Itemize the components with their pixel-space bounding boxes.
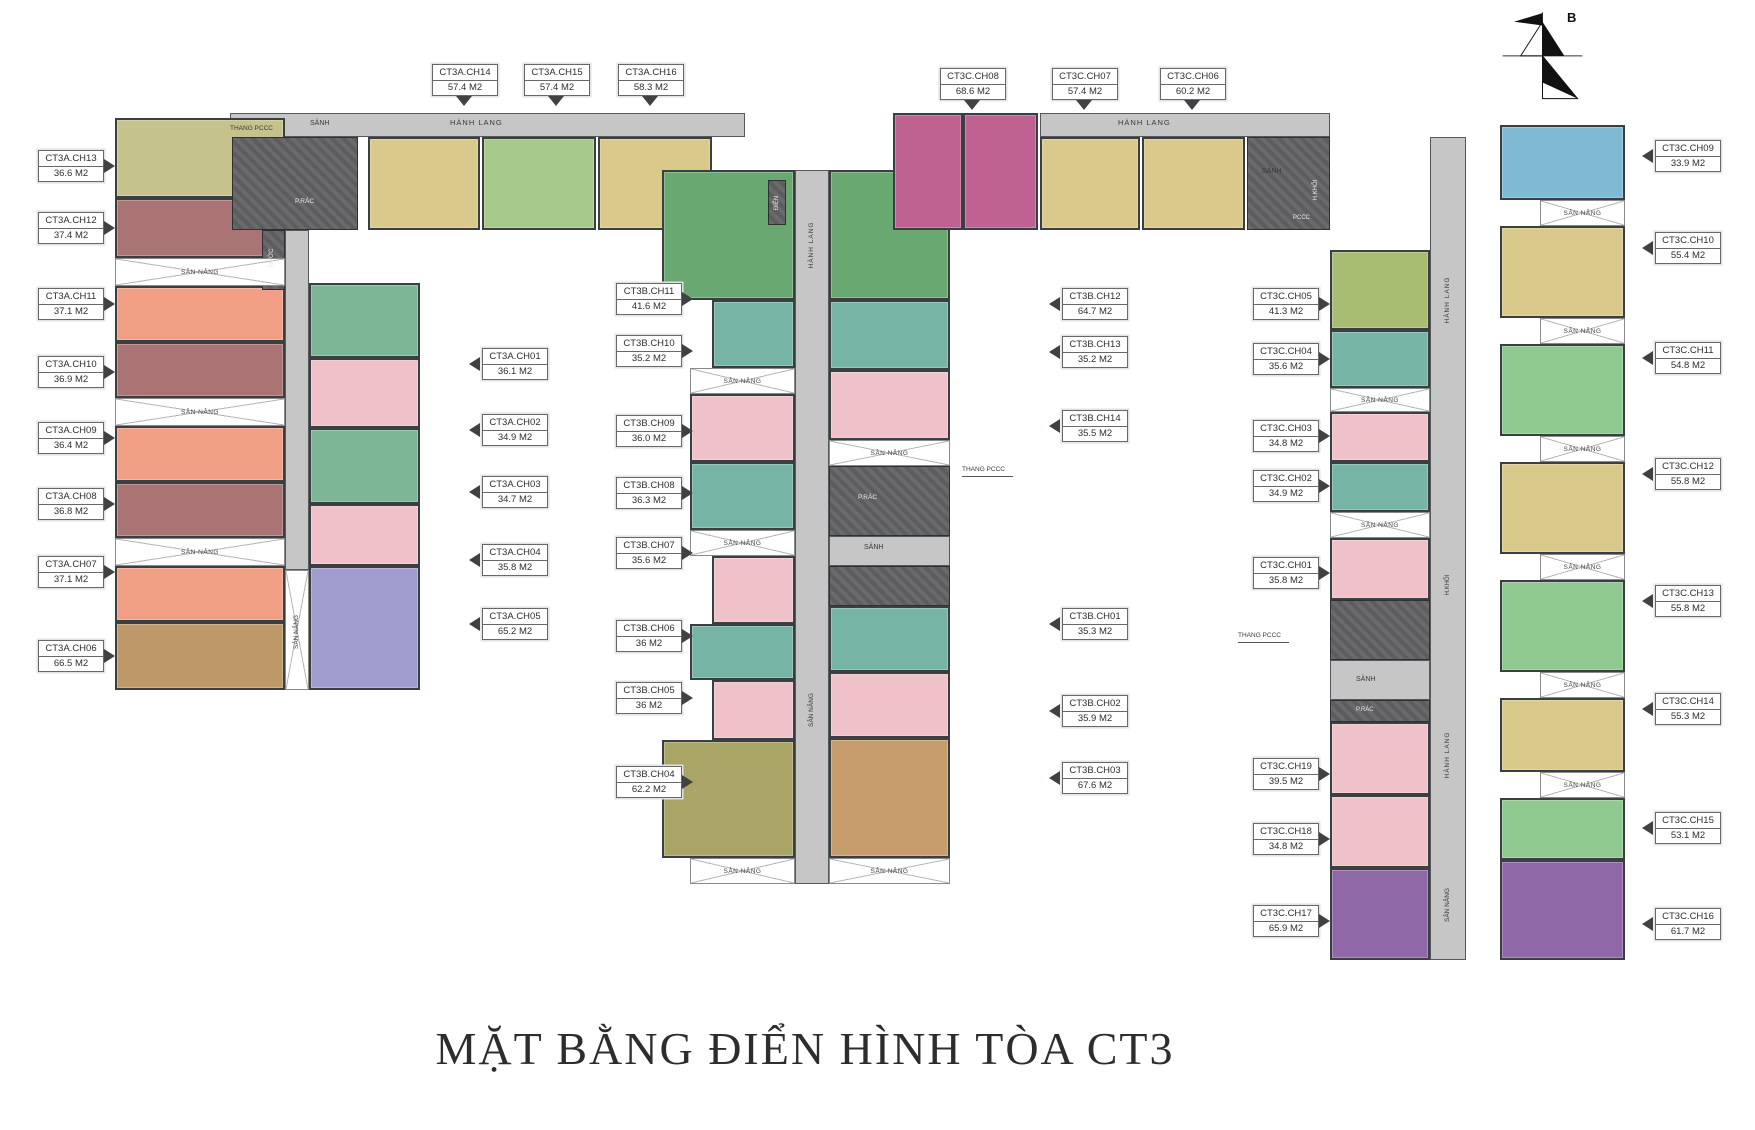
unit-area: 60.2 M2 bbox=[1161, 85, 1225, 99]
callout-arrow-icon bbox=[469, 357, 480, 371]
san-nang-strip: SÂN NÂNG bbox=[115, 258, 285, 286]
unit-callout-CT3C-CH03: CT3C.CH0334.8 M2 bbox=[1253, 420, 1319, 452]
unit-area: 55.8 M2 bbox=[1656, 602, 1720, 616]
unit-area: 68.6 M2 bbox=[941, 85, 1005, 99]
callout-arrow-icon bbox=[104, 649, 115, 663]
callout-arrow-icon bbox=[1049, 704, 1060, 718]
unit-callout-CT3C-CH12: CT3C.CH1255.8 M2 bbox=[1655, 458, 1721, 490]
unit-name: CT3C.CH16 bbox=[1656, 909, 1720, 925]
unit-area: 36.6 M2 bbox=[39, 167, 103, 181]
unit-callout-CT3A-CH07: CT3A.CH0737.1 M2 bbox=[38, 556, 104, 588]
unit-block-CT3A-CH15 bbox=[482, 137, 596, 230]
plan-text: SẢNH bbox=[1356, 674, 1375, 686]
unit-name: CT3C.CH09 bbox=[1656, 141, 1720, 157]
unit-area: 35.6 M2 bbox=[1254, 360, 1318, 374]
unit-area: 57.4 M2 bbox=[433, 81, 497, 95]
plan-text: THANG PCCC bbox=[962, 464, 1013, 477]
unit-area: 37.1 M2 bbox=[39, 573, 103, 587]
unit-area: 57.4 M2 bbox=[1053, 85, 1117, 99]
callout-arrow-icon bbox=[682, 775, 693, 789]
unit-name: CT3A.CH13 bbox=[39, 151, 103, 167]
unit-callout-CT3A-CH02: CT3A.CH0234.9 M2 bbox=[482, 414, 548, 446]
unit-block-CT3A-CH03 bbox=[309, 428, 420, 504]
unit-callout-CT3B-CH07: CT3B.CH0735.6 M2 bbox=[616, 537, 682, 569]
callout-arrow-icon bbox=[104, 297, 115, 311]
san-nang-strip: SÂN NÂNG bbox=[1330, 388, 1430, 412]
unit-name: CT3C.CH15 bbox=[1656, 813, 1720, 829]
unit-area: 34.8 M2 bbox=[1254, 840, 1318, 854]
unit-area: 55.3 M2 bbox=[1656, 710, 1720, 724]
unit-name: CT3C.CH19 bbox=[1254, 759, 1318, 775]
callout-arrow-icon bbox=[469, 423, 480, 437]
unit-name: CT3A.CH04 bbox=[483, 545, 547, 561]
unit-block-CT3C-CH13 bbox=[1500, 580, 1625, 672]
callout-arrow-icon bbox=[1319, 297, 1330, 311]
callout-arrow-icon bbox=[456, 96, 472, 106]
unit-area: 35.5 M2 bbox=[1063, 427, 1127, 441]
san-nang-strip: SÂN NÂNG bbox=[690, 368, 795, 394]
plan-text: SẢNH bbox=[864, 542, 883, 554]
unit-block-CT3B-CH04 bbox=[662, 740, 795, 858]
unit-name: CT3A.CH06 bbox=[39, 641, 103, 657]
unit-area: 65.2 M2 bbox=[483, 625, 547, 639]
plan-text: THANG PCCC bbox=[1238, 630, 1289, 643]
unit-name: CT3C.CH06 bbox=[1161, 69, 1225, 85]
unit-area: 34.9 M2 bbox=[1254, 487, 1318, 501]
unit-area: 35.9 M2 bbox=[1063, 712, 1127, 726]
unit-name: CT3A.CH16 bbox=[619, 65, 683, 81]
callout-arrow-icon bbox=[682, 629, 693, 643]
unit-block-CT3A-CH08 bbox=[115, 482, 285, 538]
san-nang-strip: SÂN NÂNG bbox=[1330, 512, 1430, 538]
unit-block-CT3A-CH09 bbox=[115, 426, 285, 482]
unit-name: CT3A.CH07 bbox=[39, 557, 103, 573]
callout-arrow-icon bbox=[1049, 345, 1060, 359]
unit-area: 41.6 M2 bbox=[617, 300, 681, 314]
unit-area: 65.9 M2 bbox=[1254, 922, 1318, 936]
san-nang-strip: SÂN NÂNG bbox=[1540, 436, 1625, 462]
unit-block-CT3B-CH02 bbox=[829, 672, 950, 738]
corridor bbox=[285, 230, 309, 570]
callout-arrow-icon bbox=[104, 221, 115, 235]
unit-block-CT3C-CH17 bbox=[1330, 868, 1430, 960]
unit-area: 36.1 M2 bbox=[483, 365, 547, 379]
san-nang-strip: SÂN NÂNG bbox=[690, 858, 795, 884]
plan-text: HÀNH LANG bbox=[450, 117, 503, 129]
unit-callout-CT3C-CH18: CT3C.CH1834.8 M2 bbox=[1253, 823, 1319, 855]
unit-name: CT3C.CH02 bbox=[1254, 471, 1318, 487]
unit-block-CT3A-CH06 bbox=[115, 622, 285, 690]
unit-block-CT3B-CH09 bbox=[690, 394, 795, 462]
san-nang-strip: SÂN NÂNG bbox=[1540, 672, 1625, 698]
unit-area: 64.7 M2 bbox=[1063, 305, 1127, 319]
unit-block-CT3C-CH05 bbox=[1330, 250, 1430, 330]
unit-area: 53.1 M2 bbox=[1656, 829, 1720, 843]
unit-callout-CT3A-CH06: CT3A.CH0666.5 M2 bbox=[38, 640, 104, 672]
unit-name: CT3C.CH03 bbox=[1254, 421, 1318, 437]
plan-text: HÀNH LANG bbox=[1442, 240, 1454, 360]
plan-text: P.RÁC bbox=[1356, 704, 1374, 716]
unit-callout-CT3A-CH09: CT3A.CH0936.4 M2 bbox=[38, 422, 104, 454]
unit-callout-CT3A-CH10: CT3A.CH1036.9 M2 bbox=[38, 356, 104, 388]
callout-arrow-icon bbox=[964, 100, 980, 110]
unit-area: 61.7 M2 bbox=[1656, 925, 1720, 939]
unit-block-CT3C-CH12 bbox=[1500, 462, 1625, 554]
building-core bbox=[1330, 700, 1430, 722]
callout-arrow-icon bbox=[682, 344, 693, 358]
callout-arrow-icon bbox=[1319, 767, 1330, 781]
unit-name: CT3C.CH18 bbox=[1254, 824, 1318, 840]
building-core bbox=[232, 137, 358, 230]
unit-callout-CT3B-CH13: CT3B.CH1335.2 M2 bbox=[1062, 336, 1128, 368]
unit-block-CT3C-CH14 bbox=[1500, 698, 1625, 772]
unit-name: CT3C.CH04 bbox=[1254, 344, 1318, 360]
unit-area: 36.0 M2 bbox=[617, 432, 681, 446]
unit-name: CT3A.CH05 bbox=[483, 609, 547, 625]
san-nang-strip: SÂN NÂNG bbox=[829, 440, 950, 466]
unit-name: CT3B.CH02 bbox=[1063, 696, 1127, 712]
building-core bbox=[829, 466, 950, 536]
unit-callout-CT3B-CH03: CT3B.CH0367.6 M2 bbox=[1062, 762, 1128, 794]
callout-arrow-icon bbox=[1642, 821, 1653, 835]
unit-name: CT3A.CH09 bbox=[39, 423, 103, 439]
unit-block-CT3B-CH10 bbox=[712, 300, 795, 368]
unit-name: CT3B.CH13 bbox=[1063, 337, 1127, 353]
unit-callout-CT3C-CH17: CT3C.CH1765.9 M2 bbox=[1253, 905, 1319, 937]
unit-area: 58.3 M2 bbox=[619, 81, 683, 95]
unit-name: CT3A.CH01 bbox=[483, 349, 547, 365]
unit-callout-CT3C-CH02: CT3C.CH0234.9 M2 bbox=[1253, 470, 1319, 502]
unit-callout-CT3A-CH04: CT3A.CH0435.8 M2 bbox=[482, 544, 548, 576]
unit-block-CT3A-CH05 bbox=[309, 566, 420, 690]
unit-block-CT3C-CH04 bbox=[1330, 330, 1430, 388]
unit-name: CT3C.CH01 bbox=[1254, 558, 1318, 574]
unit-area: 34.7 M2 bbox=[483, 493, 547, 507]
unit-callout-CT3C-CH07: CT3C.CH0757.4 M2 bbox=[1052, 68, 1118, 100]
unit-area: 55.8 M2 bbox=[1656, 475, 1720, 489]
unit-callout-CT3C-CH04: CT3C.CH0435.6 M2 bbox=[1253, 343, 1319, 375]
plan-text: H.KHỐI bbox=[1310, 130, 1322, 250]
unit-callout-CT3C-CH16: CT3C.CH1661.7 M2 bbox=[1655, 908, 1721, 940]
unit-name: CT3B.CH11 bbox=[617, 284, 681, 300]
callout-arrow-icon bbox=[104, 159, 115, 173]
unit-block-CT3A-CH10 bbox=[115, 342, 285, 398]
unit-name: CT3B.CH01 bbox=[1063, 609, 1127, 625]
san-nang-strip: SÂN NÂNG bbox=[1540, 772, 1625, 798]
unit-name: CT3C.CH14 bbox=[1656, 694, 1720, 710]
unit-name: CT3C.CH07 bbox=[1053, 69, 1117, 85]
unit-callout-CT3C-CH10: CT3C.CH1055.4 M2 bbox=[1655, 232, 1721, 264]
unit-callout-CT3B-CH14: CT3B.CH1435.5 M2 bbox=[1062, 410, 1128, 442]
unit-name: CT3A.CH03 bbox=[483, 477, 547, 493]
unit-callout-CT3C-CH05: CT3C.CH0541.3 M2 bbox=[1253, 288, 1319, 320]
callout-arrow-icon bbox=[682, 691, 693, 705]
unit-name: CT3B.CH03 bbox=[1063, 763, 1127, 779]
plan-text: H.KHỐI bbox=[1442, 525, 1454, 645]
unit-name: CT3B.CH05 bbox=[617, 683, 681, 699]
callout-arrow-icon bbox=[1049, 771, 1060, 785]
callout-arrow-icon bbox=[1642, 149, 1653, 163]
unit-area: 62.2 M2 bbox=[617, 783, 681, 797]
callout-arrow-icon bbox=[682, 424, 693, 438]
callout-arrow-icon bbox=[104, 565, 115, 579]
unit-area: 39.5 M2 bbox=[1254, 775, 1318, 789]
unit-callout-CT3B-CH04: CT3B.CH0462.2 M2 bbox=[616, 766, 682, 798]
unit-name: CT3C.CH11 bbox=[1656, 343, 1720, 359]
callout-arrow-icon bbox=[469, 553, 480, 567]
unit-name: CT3B.CH12 bbox=[1063, 289, 1127, 305]
plan-text: NƯỚC bbox=[266, 198, 278, 318]
callout-arrow-icon bbox=[1184, 100, 1200, 110]
unit-callout-CT3A-CH08: CT3A.CH0836.8 M2 bbox=[38, 488, 104, 520]
san-nang-strip: SÂN NÂNG bbox=[829, 858, 950, 884]
unit-callout-CT3C-CH09: CT3C.CH0933.9 M2 bbox=[1655, 140, 1721, 172]
unit-block-CT3C-CH19 bbox=[1330, 722, 1430, 795]
unit-callout-CT3B-CH05: CT3B.CH0536 M2 bbox=[616, 682, 682, 714]
unit-callout-CT3A-CH03: CT3A.CH0334.7 M2 bbox=[482, 476, 548, 508]
unit-area: 36.8 M2 bbox=[39, 505, 103, 519]
unit-block-CT3B-CH03 bbox=[829, 738, 950, 858]
unit-area: 35.2 M2 bbox=[617, 352, 681, 366]
unit-area: 35.2 M2 bbox=[1063, 353, 1127, 367]
unit-callout-CT3B-CH02: CT3B.CH0235.9 M2 bbox=[1062, 695, 1128, 727]
unit-area: 34.8 M2 bbox=[1254, 437, 1318, 451]
plan-text: HÀNH LANG bbox=[1442, 695, 1454, 815]
unit-callout-CT3C-CH15: CT3C.CH1553.1 M2 bbox=[1655, 812, 1721, 844]
floor-plan-canvas: MẶT BẰNG ĐIỂN HÌNH TÒA CT3 B SÂN NÂNGSÂN… bbox=[0, 0, 1755, 1130]
unit-name: CT3B.CH14 bbox=[1063, 411, 1127, 427]
unit-block-CT3C-CH02 bbox=[1330, 462, 1430, 512]
unit-name: CT3B.CH07 bbox=[617, 538, 681, 554]
plan-text: SẢNH bbox=[310, 118, 329, 130]
callout-arrow-icon bbox=[1319, 914, 1330, 928]
unit-area: 34.9 M2 bbox=[483, 431, 547, 445]
unit-name: CT3A.CH12 bbox=[39, 213, 103, 229]
unit-block-CT3C-CH18 bbox=[1330, 795, 1430, 868]
unit-name: CT3C.CH10 bbox=[1656, 233, 1720, 249]
unit-area: 33.9 M2 bbox=[1656, 157, 1720, 171]
unit-block-CT3A-CH11 bbox=[115, 286, 285, 342]
san-nang-strip: SÂN NÂNG bbox=[115, 538, 285, 566]
unit-callout-CT3C-CH14: CT3C.CH1455.3 M2 bbox=[1655, 693, 1721, 725]
plan-text: HÀNH LANG bbox=[806, 185, 818, 305]
unit-block-CT3B-CH05 bbox=[712, 680, 795, 740]
san-nang-strip: SÂN NÂNG bbox=[690, 530, 795, 556]
san-nang-strip: SÂN NÂNG bbox=[1540, 200, 1625, 226]
unit-block-CT3B-CH06 bbox=[690, 624, 795, 680]
callout-arrow-icon bbox=[104, 431, 115, 445]
callout-arrow-icon bbox=[682, 486, 693, 500]
unit-area: 67.6 M2 bbox=[1063, 779, 1127, 793]
callout-arrow-icon bbox=[1642, 702, 1653, 716]
unit-block-CT3B-CH07 bbox=[712, 556, 795, 624]
unit-block-CT3B-CH08 bbox=[690, 462, 795, 530]
unit-name: CT3C.CH08 bbox=[941, 69, 1005, 85]
unit-callout-CT3B-CH09: CT3B.CH0936.0 M2 bbox=[616, 415, 682, 447]
unit-name: CT3B.CH06 bbox=[617, 621, 681, 637]
corridor bbox=[1040, 113, 1330, 137]
unit-name: CT3A.CH14 bbox=[433, 65, 497, 81]
unit-name: CT3B.CH09 bbox=[617, 416, 681, 432]
unit-callout-CT3C-CH11: CT3C.CH1154.8 M2 bbox=[1655, 342, 1721, 374]
unit-callout-CT3A-CH11: CT3A.CH1137.1 M2 bbox=[38, 288, 104, 320]
unit-callout-CT3A-CH12: CT3A.CH1237.4 M2 bbox=[38, 212, 104, 244]
plan-text: P.RÁC bbox=[295, 196, 314, 208]
unit-name: CT3B.CH08 bbox=[617, 478, 681, 494]
unit-name: CT3C.CH05 bbox=[1254, 289, 1318, 305]
unit-name: CT3C.CH17 bbox=[1254, 906, 1318, 922]
unit-callout-CT3C-CH13: CT3C.CH1355.8 M2 bbox=[1655, 585, 1721, 617]
callout-arrow-icon bbox=[642, 96, 658, 106]
unit-name: CT3B.CH10 bbox=[617, 336, 681, 352]
unit-block-CT3C-CH11 bbox=[1500, 344, 1625, 436]
plan-text: SÂN NÂNG bbox=[1442, 845, 1454, 965]
unit-area: 36.9 M2 bbox=[39, 373, 103, 387]
page-title: MẶT BẰNG ĐIỂN HÌNH TÒA CT3 bbox=[0, 1022, 1610, 1075]
unit-block-CT3B-CH14 bbox=[829, 370, 950, 440]
callout-arrow-icon bbox=[1319, 832, 1330, 846]
plan-text: PCCC bbox=[1293, 212, 1310, 224]
unit-name: CT3A.CH08 bbox=[39, 489, 103, 505]
building-core bbox=[829, 566, 950, 606]
unit-block-CT3C-CH08 bbox=[963, 113, 1038, 230]
unit-area: 36 M2 bbox=[617, 699, 681, 713]
unit-name: CT3C.CH12 bbox=[1656, 459, 1720, 475]
unit-callout-CT3C-CH06: CT3C.CH0660.2 M2 bbox=[1160, 68, 1226, 100]
callout-arrow-icon bbox=[1049, 297, 1060, 311]
unit-callout-CT3A-CH05: CT3A.CH0565.2 M2 bbox=[482, 608, 548, 640]
unit-block-CT3C-CH01 bbox=[1330, 538, 1430, 600]
unit-block-CT3A-CH07 bbox=[115, 566, 285, 622]
unit-callout-CT3A-CH13: CT3A.CH1336.6 M2 bbox=[38, 150, 104, 182]
unit-block-CT3B-CH12 bbox=[893, 113, 963, 230]
unit-block-CT3A-CH01 bbox=[309, 283, 420, 358]
unit-callout-CT3C-CH01: CT3C.CH0135.8 M2 bbox=[1253, 557, 1319, 589]
callout-arrow-icon bbox=[682, 292, 693, 306]
plan-text: HÀNH LANG bbox=[1118, 117, 1171, 129]
callout-arrow-icon bbox=[104, 497, 115, 511]
san-nang-strip: SÂN NÂNG bbox=[1540, 554, 1625, 580]
unit-name: CT3A.CH11 bbox=[39, 289, 103, 305]
unit-area: 54.8 M2 bbox=[1656, 359, 1720, 373]
callout-arrow-icon bbox=[1319, 352, 1330, 366]
callout-arrow-icon bbox=[1319, 479, 1330, 493]
unit-callout-CT3B-CH06: CT3B.CH0636 M2 bbox=[616, 620, 682, 652]
unit-area: 37.1 M2 bbox=[39, 305, 103, 319]
unit-callout-CT3B-CH01: CT3B.CH0135.3 M2 bbox=[1062, 608, 1128, 640]
unit-name: CT3A.CH10 bbox=[39, 357, 103, 373]
san-nang-strip: SÂN NÂNG bbox=[1540, 318, 1625, 344]
unit-block-CT3C-CH10 bbox=[1500, 226, 1625, 318]
callout-arrow-icon bbox=[1076, 100, 1092, 110]
callout-arrow-icon bbox=[1642, 594, 1653, 608]
san-nang-strip: SÂN NÂNG bbox=[115, 398, 285, 426]
unit-callout-CT3B-CH12: CT3B.CH1264.7 M2 bbox=[1062, 288, 1128, 320]
callout-arrow-icon bbox=[1319, 566, 1330, 580]
plan-text: P.RÁC bbox=[858, 492, 877, 504]
unit-callout-CT3B-CH11: CT3B.CH1141.6 M2 bbox=[616, 283, 682, 315]
unit-area: 35.6 M2 bbox=[617, 554, 681, 568]
unit-block-CT3A-CH04 bbox=[309, 504, 420, 566]
north-label: B bbox=[1567, 10, 1576, 25]
unit-area: 66.5 M2 bbox=[39, 657, 103, 671]
unit-callout-CT3A-CH01: CT3A.CH0136.1 M2 bbox=[482, 348, 548, 380]
unit-area: 35.3 M2 bbox=[1063, 625, 1127, 639]
unit-callout-CT3A-CH15: CT3A.CH1557.4 M2 bbox=[524, 64, 590, 96]
callout-arrow-icon bbox=[1642, 351, 1653, 365]
callout-arrow-icon bbox=[1642, 467, 1653, 481]
unit-callout-CT3A-CH16: CT3A.CH1658.3 M2 bbox=[618, 64, 684, 96]
unit-area: 36 M2 bbox=[617, 637, 681, 651]
callout-arrow-icon bbox=[1319, 429, 1330, 443]
unit-callout-CT3C-CH19: CT3C.CH1939.5 M2 bbox=[1253, 758, 1319, 790]
unit-name: CT3A.CH15 bbox=[525, 65, 589, 81]
callout-arrow-icon bbox=[548, 96, 564, 106]
unit-area: 35.8 M2 bbox=[1254, 574, 1318, 588]
unit-block-CT3C-CH06 bbox=[1142, 137, 1245, 230]
callout-arrow-icon bbox=[1642, 917, 1653, 931]
unit-area: 55.4 M2 bbox=[1656, 249, 1720, 263]
unit-area: 36.4 M2 bbox=[39, 439, 103, 453]
callout-arrow-icon bbox=[1642, 241, 1653, 255]
unit-callout-CT3A-CH14: CT3A.CH1457.4 M2 bbox=[432, 64, 498, 96]
unit-name: CT3A.CH02 bbox=[483, 415, 547, 431]
callout-arrow-icon bbox=[1049, 617, 1060, 631]
callout-arrow-icon bbox=[682, 546, 693, 560]
unit-name: CT3C.CH13 bbox=[1656, 586, 1720, 602]
unit-block-CT3C-CH16 bbox=[1500, 860, 1625, 960]
callout-arrow-icon bbox=[469, 485, 480, 499]
callout-arrow-icon bbox=[469, 617, 480, 631]
unit-area: 37.4 M2 bbox=[39, 229, 103, 243]
unit-area: 57.4 M2 bbox=[525, 81, 589, 95]
unit-area: 41.3 M2 bbox=[1254, 305, 1318, 319]
plan-text: THANG PCCC bbox=[230, 123, 273, 135]
callout-arrow-icon bbox=[1049, 419, 1060, 433]
unit-area: 36.3 M2 bbox=[617, 494, 681, 508]
plan-text: SÂN NÂNG bbox=[291, 572, 303, 692]
unit-block-CT3C-CH15 bbox=[1500, 798, 1625, 860]
plan-text: ĐIỆN bbox=[771, 143, 783, 263]
unit-callout-CT3B-CH10: CT3B.CH1035.2 M2 bbox=[616, 335, 682, 367]
callout-arrow-icon bbox=[104, 365, 115, 379]
corridor bbox=[1330, 660, 1430, 700]
corridor bbox=[829, 536, 950, 566]
unit-block-CT3C-CH07 bbox=[1040, 137, 1140, 230]
plan-text: SÂN NÂNG bbox=[806, 650, 818, 770]
unit-block-CT3B-CH01 bbox=[829, 606, 950, 672]
unit-block-CT3A-CH02 bbox=[309, 358, 420, 428]
unit-block-CT3C-CH03 bbox=[1330, 412, 1430, 462]
unit-area: 35.8 M2 bbox=[483, 561, 547, 575]
unit-callout-CT3C-CH08: CT3C.CH0868.6 M2 bbox=[940, 68, 1006, 100]
building-core bbox=[1330, 600, 1430, 660]
unit-callout-CT3B-CH08: CT3B.CH0836.3 M2 bbox=[616, 477, 682, 509]
plan-text: SẢNH bbox=[1262, 166, 1281, 178]
unit-block-CT3A-CH14 bbox=[368, 137, 480, 230]
unit-name: CT3B.CH04 bbox=[617, 767, 681, 783]
unit-block-CT3B-CH13 bbox=[829, 300, 950, 370]
unit-block-CT3C-CH09 bbox=[1500, 125, 1625, 200]
